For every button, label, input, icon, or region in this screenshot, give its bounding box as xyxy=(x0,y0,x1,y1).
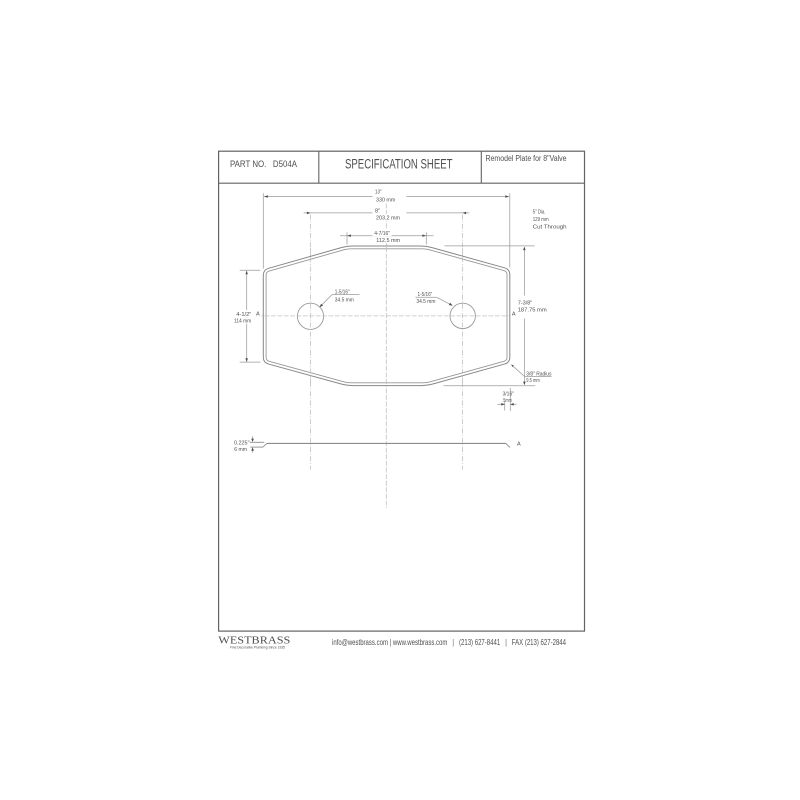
svg-text:0.225": 0.225" xyxy=(234,440,250,446)
svg-text:Fine Decorative Plumbing Since: Fine Decorative Plumbing Since 1935 xyxy=(230,646,285,650)
svg-text:6 mm: 6 mm xyxy=(234,447,247,453)
svg-text:Cut Through: Cut Through xyxy=(533,224,567,230)
svg-text:PART NO. D504A: PART NO. D504A xyxy=(230,159,298,170)
svg-text:203.2 mm: 203.2 mm xyxy=(376,216,400,222)
svg-text:5mm: 5mm xyxy=(503,398,512,404)
svg-text:187.75 mm: 187.75 mm xyxy=(518,308,547,314)
svg-text:4-1/2": 4-1/2" xyxy=(236,312,251,318)
svg-text:330 mm: 330 mm xyxy=(376,197,395,203)
svg-text:4-7/16": 4-7/16" xyxy=(374,231,390,237)
svg-text:5" Dia.: 5" Dia. xyxy=(533,210,546,216)
svg-text:Remodel Plate for 8"Valve: Remodel Plate for 8"Valve xyxy=(486,154,567,163)
svg-text:129 mm: 129 mm xyxy=(533,217,549,223)
svg-text:34.5 mm: 34.5 mm xyxy=(335,297,354,303)
svg-text:A: A xyxy=(517,442,521,448)
svg-text:A: A xyxy=(256,311,260,317)
svg-text:34.5 mm: 34.5 mm xyxy=(416,299,435,305)
svg-text:1-5/16": 1-5/16" xyxy=(418,292,433,298)
svg-text:SPECIFICATION SHEET: SPECIFICATION SHEET xyxy=(345,157,453,172)
svg-text:1-5/16": 1-5/16" xyxy=(335,290,350,296)
svg-text:3/8" Radius: 3/8" Radius xyxy=(526,371,551,377)
svg-text:info@westbrass.com | www.westb: info@westbrass.com | www.westbrass.com |… xyxy=(332,638,566,647)
svg-text:13": 13" xyxy=(375,190,382,196)
svg-text:A: A xyxy=(512,311,516,317)
svg-text:114 mm: 114 mm xyxy=(234,319,251,325)
svg-text:3/16": 3/16" xyxy=(503,392,515,398)
svg-text:9.5 mm: 9.5 mm xyxy=(526,378,540,384)
svg-text:112.5 mm: 112.5 mm xyxy=(376,238,400,244)
svg-text:7-3/8": 7-3/8" xyxy=(518,301,533,307)
svg-text:8": 8" xyxy=(375,208,380,214)
